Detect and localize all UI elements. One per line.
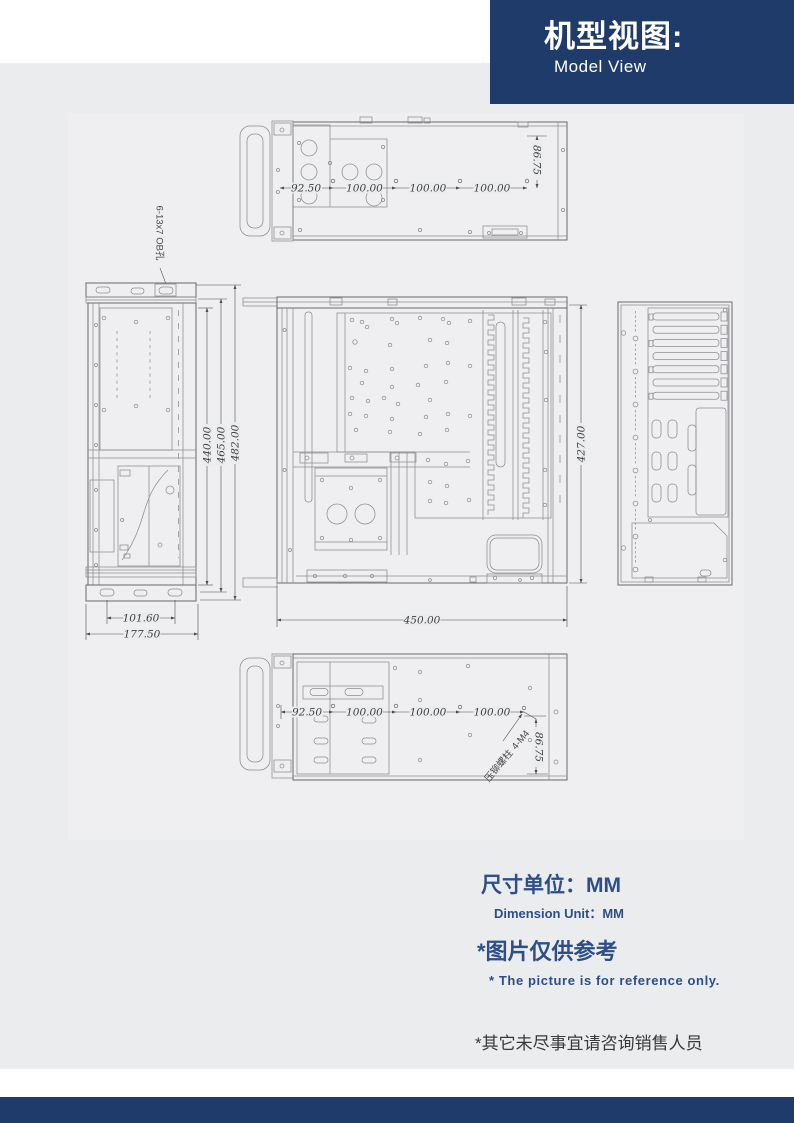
front-dim-482: 482.00 [230, 424, 242, 462]
top-dim-100-a: 100.00 [346, 183, 383, 195]
bottom-navy-bar [0, 1097, 794, 1123]
note-dimension-unit-en: Dimension Unit：MM [494, 903, 624, 922]
rear-view-drawing [618, 302, 732, 585]
top-view-drawing: 92.50 100.00 100.00 100.00 86.75 [240, 117, 567, 241]
front-dim-440: 440.00 [202, 426, 214, 464]
top-dim-100-c: 100.00 [474, 183, 511, 195]
bottom-dim-100-c: 100.00 [474, 707, 511, 719]
bottom-dim-92-50: 92.50 [292, 707, 322, 719]
front-view-drawing: 6-13x7 OB孔 [86, 206, 242, 641]
top-dim-100-b: 100.00 [410, 183, 447, 195]
bottom-white-band [0, 1069, 794, 1097]
bottom-view-drawing: 92.50 100.00 100.00 100.00 86.75 压铆螺柱4-M… [240, 654, 567, 784]
front-hole-note: 6-13x7 OB孔 [154, 206, 165, 261]
bottom-dim-100-a: 100.00 [346, 707, 383, 719]
note-dimension-unit-zh: 尺寸单位：MM [481, 869, 621, 899]
bottom-dim-100-b: 100.00 [410, 707, 447, 719]
side-dim-427: 427.00 [576, 425, 588, 463]
note-reference-en: * The picture is for reference only. [489, 973, 720, 988]
front-dim-101-60: 101.60 [123, 613, 160, 625]
bottom-dim-86-75: 86.75 [533, 732, 545, 762]
datasheet-page: 机型视图: Model View [0, 0, 794, 1123]
note-contact-sales: *其它未尽事宜请咨询销售人员 [475, 1029, 703, 1054]
note-reference-zh: *图片仅供参考 [477, 934, 618, 966]
side-view-drawing: 427.00 450.00 [243, 297, 588, 627]
front-dim-177-50: 177.50 [124, 629, 161, 641]
model-view-drawing: 92.50 100.00 100.00 100.00 86.75 6-13x7 … [0, 0, 794, 1123]
front-dim-465: 465.00 [216, 426, 228, 464]
top-dim-92-50: 92.50 [291, 183, 321, 195]
top-dim-86-75: 86.75 [531, 145, 543, 175]
side-dim-450: 450.00 [403, 615, 441, 627]
